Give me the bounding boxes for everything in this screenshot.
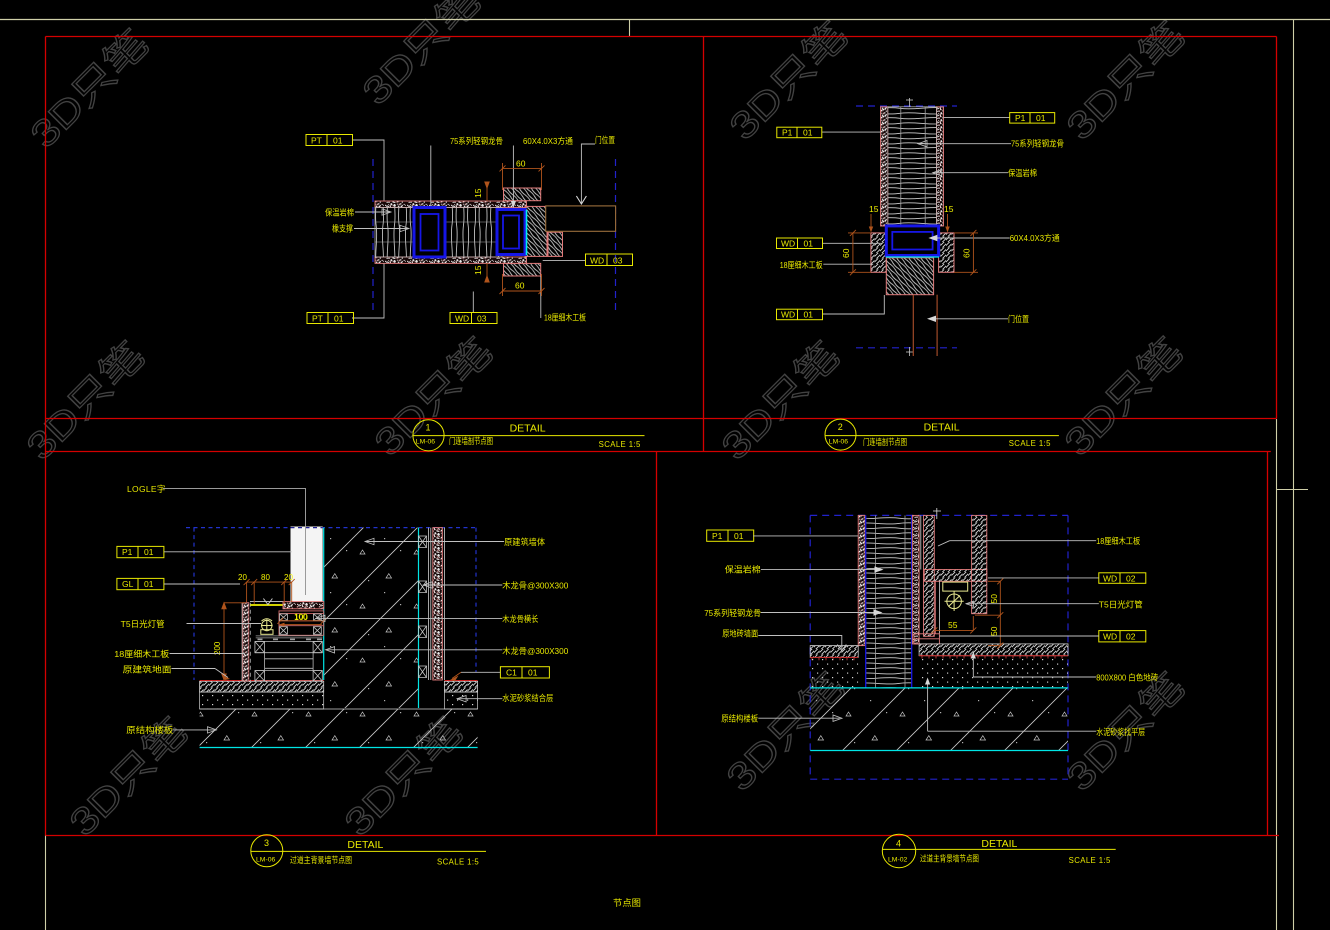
svg-text:保温岩棉: 保温岩棉 [1008, 168, 1037, 178]
svg-text:80: 80 [261, 573, 270, 582]
svg-text:SCALE 1:5: SCALE 1:5 [1069, 856, 1111, 865]
svg-text:SCALE 1:5: SCALE 1:5 [1009, 439, 1051, 448]
svg-text:橡支撑: 橡支撑 [332, 224, 353, 234]
svg-text:过道主背景墙节点图: 过道主背景墙节点图 [290, 855, 352, 865]
svg-text:50: 50 [989, 626, 999, 636]
svg-text:WD: WD [1103, 573, 1117, 583]
svg-text:4: 4 [896, 839, 901, 849]
svg-text:P1: P1 [1015, 113, 1026, 123]
svg-text:100: 100 [294, 613, 308, 622]
svg-text:75系列轻钢龙骨: 75系列轻钢龙骨 [704, 608, 761, 618]
svg-text:原结构楼板: 原结构楼板 [721, 713, 758, 723]
svg-text:03: 03 [477, 314, 487, 324]
svg-text:木龙骨横长: 木龙骨横长 [502, 614, 538, 624]
svg-text:02: 02 [1126, 631, 1136, 641]
svg-text:LM-02: LM-02 [888, 857, 907, 864]
svg-text:01: 01 [528, 668, 538, 678]
svg-text:门位置: 门位置 [595, 135, 615, 145]
svg-text:60X4.0X3方通: 60X4.0X3方通 [523, 136, 573, 146]
svg-text:SCALE 1:5: SCALE 1:5 [437, 857, 479, 866]
svg-text:门连墙剖节点图: 门连墙剖节点图 [449, 436, 493, 446]
svg-text:50: 50 [989, 594, 999, 604]
svg-text:18厘细木工板: 18厘细木工板 [780, 260, 823, 270]
svg-text:T5日光灯管: T5日光灯管 [1099, 599, 1143, 609]
svg-text:WD: WD [455, 314, 469, 324]
svg-text:PT: PT [312, 314, 323, 324]
svg-text:SCALE 1:5: SCALE 1:5 [599, 440, 641, 449]
svg-text:800X800 白色地砖: 800X800 白色地砖 [1096, 673, 1158, 683]
svg-text:60: 60 [516, 159, 526, 169]
svg-text:LOGLE字: LOGLE字 [127, 484, 166, 494]
svg-text:节点图: 节点图 [613, 898, 641, 908]
svg-text:T5日光灯管: T5日光灯管 [121, 619, 165, 629]
svg-text:PT: PT [311, 136, 322, 146]
svg-text:LM-06: LM-06 [829, 439, 848, 446]
svg-text:75系列轻钢龙骨: 75系列轻钢龙骨 [450, 136, 503, 146]
svg-text:18厘细木工板: 18厘细木工板 [544, 313, 586, 323]
svg-text:60: 60 [515, 281, 525, 291]
svg-text:DETAIL: DETAIL [981, 838, 1017, 850]
svg-text:门连墙剖节点图: 门连墙剖节点图 [863, 437, 907, 447]
svg-text:01: 01 [804, 310, 814, 320]
svg-text:15: 15 [473, 188, 483, 198]
svg-text:60X4.0X3方通: 60X4.0X3方通 [1010, 233, 1060, 243]
svg-text:WD: WD [590, 256, 604, 266]
svg-text:原结构楼板: 原结构楼板 [126, 725, 174, 735]
svg-text:60: 60 [841, 248, 851, 258]
svg-text:01: 01 [803, 128, 813, 138]
svg-text:WD: WD [781, 239, 795, 249]
svg-text:木龙骨@300X300: 木龙骨@300X300 [502, 646, 568, 656]
svg-text:20: 20 [238, 573, 247, 582]
svg-text:P1: P1 [712, 531, 723, 541]
svg-text:LM-06: LM-06 [256, 857, 275, 864]
svg-text:03: 03 [613, 256, 623, 266]
svg-text:200: 200 [213, 641, 222, 655]
svg-text:01: 01 [144, 547, 154, 557]
svg-text:75系列轻钢龙骨: 75系列轻钢龙骨 [1011, 139, 1064, 149]
svg-text:WD: WD [1103, 631, 1117, 641]
svg-text:18厘细木工板: 18厘细木工板 [114, 649, 170, 659]
svg-text:60: 60 [962, 248, 972, 258]
svg-text:水泥砂浆找平层: 水泥砂浆找平层 [1096, 727, 1145, 737]
svg-text:P1: P1 [782, 128, 793, 138]
svg-text:20: 20 [284, 573, 293, 582]
svg-text:01: 01 [1036, 113, 1046, 123]
svg-text:门位置: 门位置 [1008, 314, 1029, 324]
svg-text:3: 3 [264, 838, 269, 848]
svg-text:木龙骨@300X300: 木龙骨@300X300 [502, 581, 568, 591]
svg-text:WD: WD [781, 310, 795, 320]
svg-text:原地砖墙面: 原地砖墙面 [722, 628, 758, 638]
svg-text:保温岩棉: 保温岩棉 [325, 208, 354, 218]
svg-text:DETAIL: DETAIL [924, 422, 960, 434]
svg-text:18厘细木工板: 18厘细木工板 [1096, 536, 1140, 546]
svg-text:01: 01 [804, 239, 814, 249]
svg-text:LM-06: LM-06 [416, 439, 435, 446]
svg-text:原建筑墙体: 原建筑墙体 [504, 537, 545, 547]
svg-text:02: 02 [1126, 573, 1136, 583]
svg-text:C1: C1 [506, 668, 517, 678]
svg-text:15: 15 [944, 204, 954, 214]
svg-text:原建筑地面: 原建筑地面 [123, 665, 173, 675]
svg-text:1: 1 [426, 423, 431, 433]
svg-text:过道主背景墙节点图: 过道主背景墙节点图 [920, 853, 979, 863]
svg-text:15: 15 [869, 204, 879, 214]
svg-text:水泥砂浆结合层: 水泥砂浆结合层 [502, 693, 553, 703]
svg-text:DETAIL: DETAIL [347, 839, 383, 851]
svg-text:01: 01 [734, 531, 744, 541]
svg-text:01: 01 [144, 579, 154, 589]
svg-text:保温岩棉: 保温岩棉 [725, 565, 761, 575]
svg-text:GL: GL [122, 579, 134, 589]
svg-text:2: 2 [838, 422, 843, 432]
svg-text:01: 01 [333, 136, 343, 146]
svg-text:01: 01 [334, 314, 344, 324]
svg-text:P1: P1 [122, 547, 133, 557]
svg-text:DETAIL: DETAIL [510, 422, 546, 434]
svg-text:55: 55 [948, 620, 958, 630]
svg-text:15: 15 [473, 265, 483, 275]
